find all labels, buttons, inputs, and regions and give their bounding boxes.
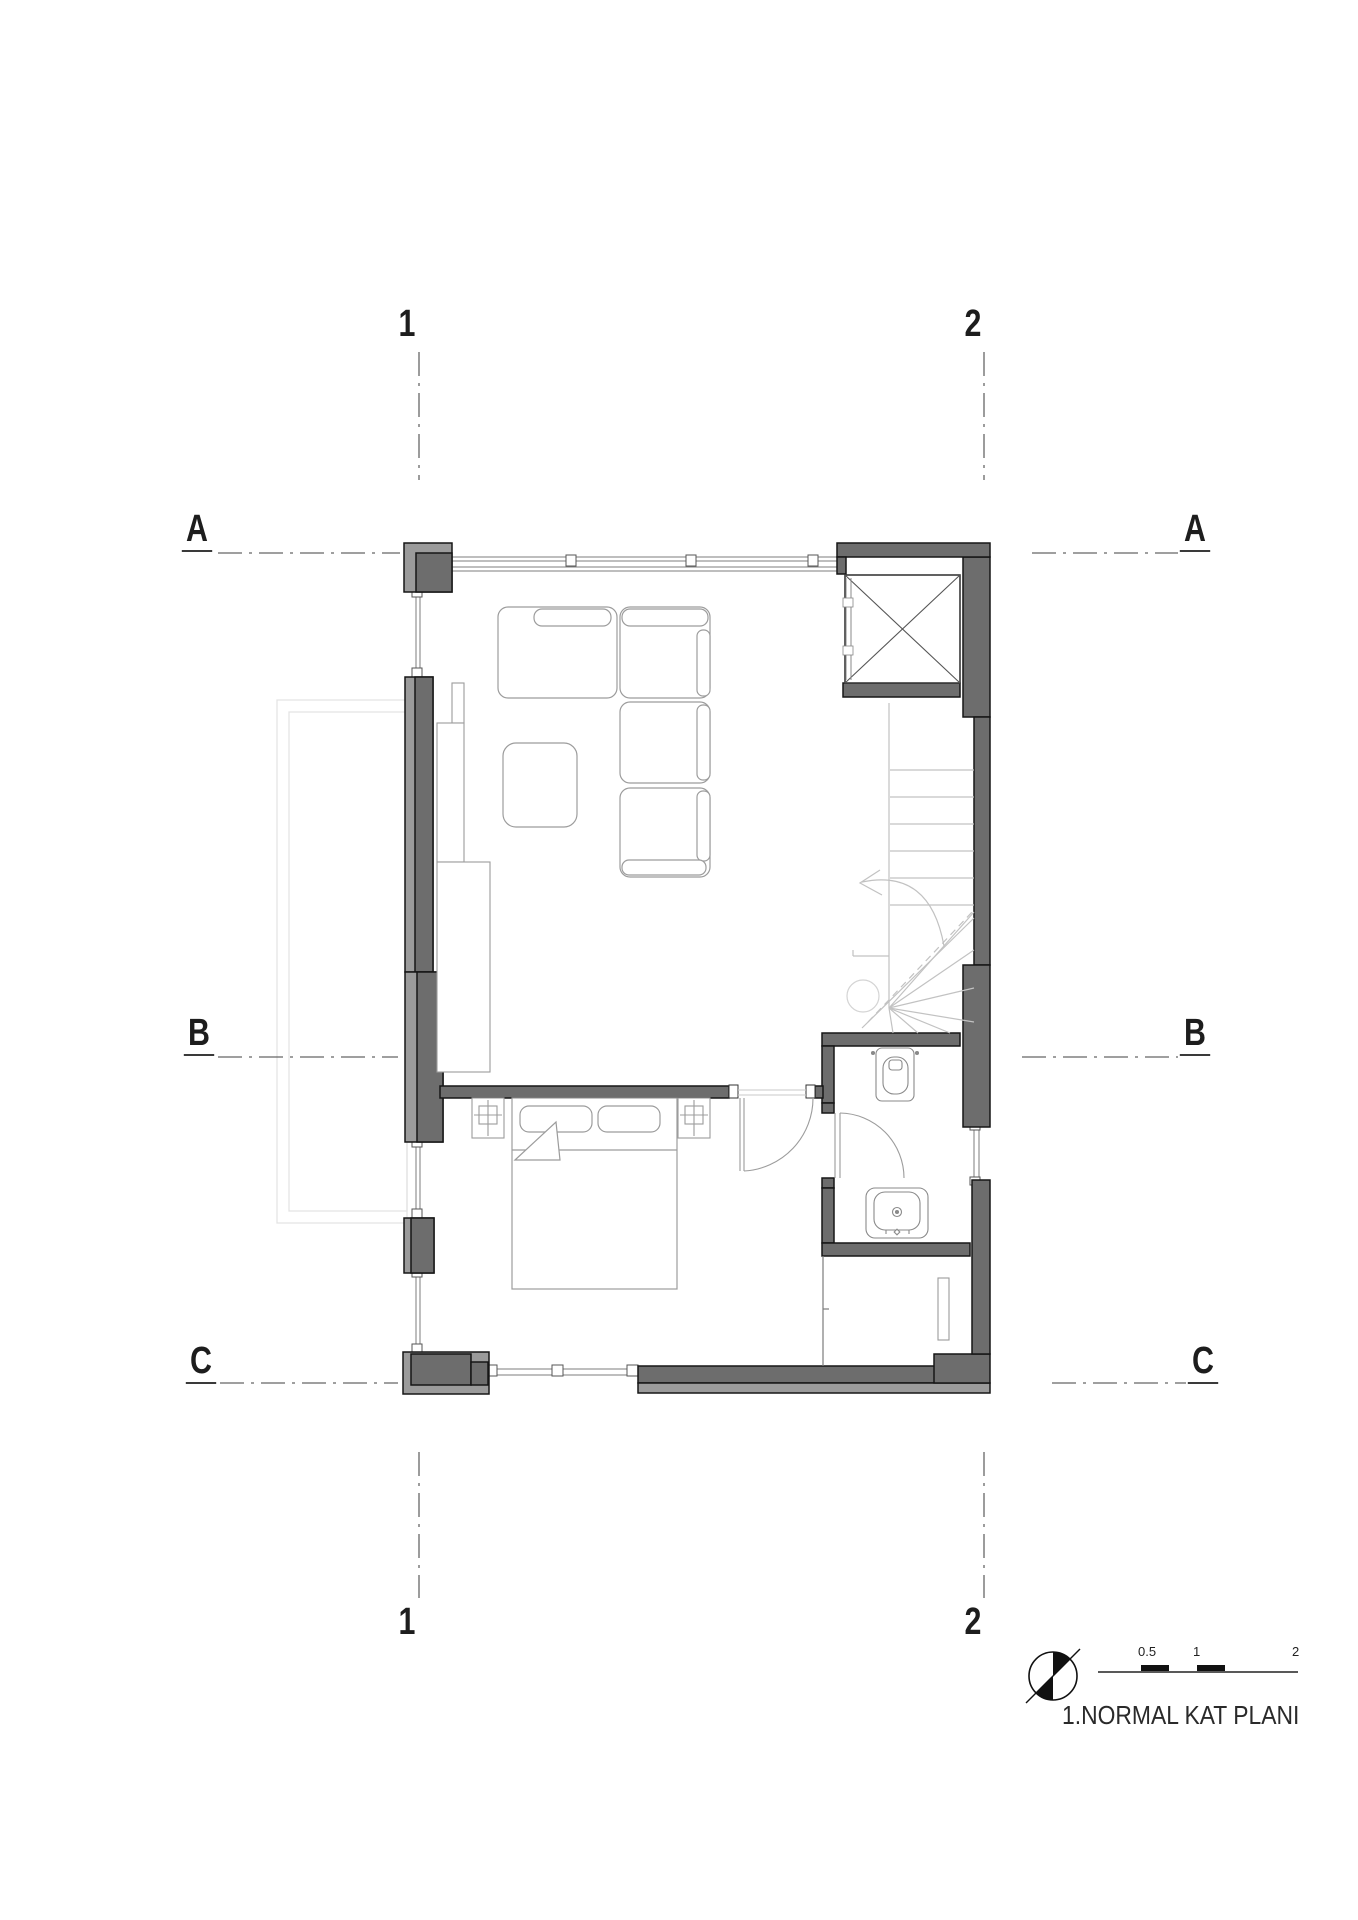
floor-plan-sheet: 1 2 1 2 A A B B C C 0.5 1 2 1.NORMAL KAT… <box>0 0 1358 1920</box>
grid-label-rowB-left: B <box>184 1013 214 1056</box>
scale-bar <box>1098 1665 1298 1672</box>
stairs <box>847 703 974 1033</box>
nightstand-left <box>472 1098 504 1138</box>
tv-unit <box>437 683 490 1072</box>
coffee-table <box>503 743 577 827</box>
drawing-title: 1.NORMAL KAT PLANI <box>1062 1700 1299 1731</box>
elevator-shaft <box>843 575 960 683</box>
grid-label-rowC-right: C <box>1188 1341 1218 1384</box>
north-compass-icon <box>1026 1649 1080 1703</box>
grid-label-rowC-left: C <box>186 1341 216 1384</box>
sofa <box>498 607 710 877</box>
grid-label-rowA-right: A <box>1180 509 1210 552</box>
bed <box>512 1098 677 1289</box>
grid-label-rowB-right: B <box>1180 1013 1210 1056</box>
closet-door <box>938 1278 949 1340</box>
bedroom-door <box>738 1090 813 1171</box>
grid-label-col2-top: 2 <box>961 302 985 346</box>
scale-label-2: 2 <box>1292 1644 1299 1659</box>
bathroom-door <box>835 1113 904 1178</box>
sink <box>866 1188 928 1238</box>
stair-direction-arrow <box>862 880 944 946</box>
grid-label-col2-bottom: 2 <box>961 1600 985 1644</box>
nightstand-right <box>678 1098 710 1138</box>
grid-axis-lines <box>218 352 1186 1598</box>
grid-label-col1-top: 1 <box>395 302 419 346</box>
closet-partition <box>823 1256 829 1366</box>
grid-label-col1-bottom: 1 <box>395 1600 419 1644</box>
scale-label-05: 0.5 <box>1138 1644 1156 1659</box>
toilet <box>872 1048 919 1101</box>
floor-plan-canvas <box>0 0 1358 1920</box>
scale-label-1: 1 <box>1193 1644 1200 1659</box>
grid-label-rowA-left: A <box>182 509 212 552</box>
faint-projection-outline <box>277 700 407 1223</box>
